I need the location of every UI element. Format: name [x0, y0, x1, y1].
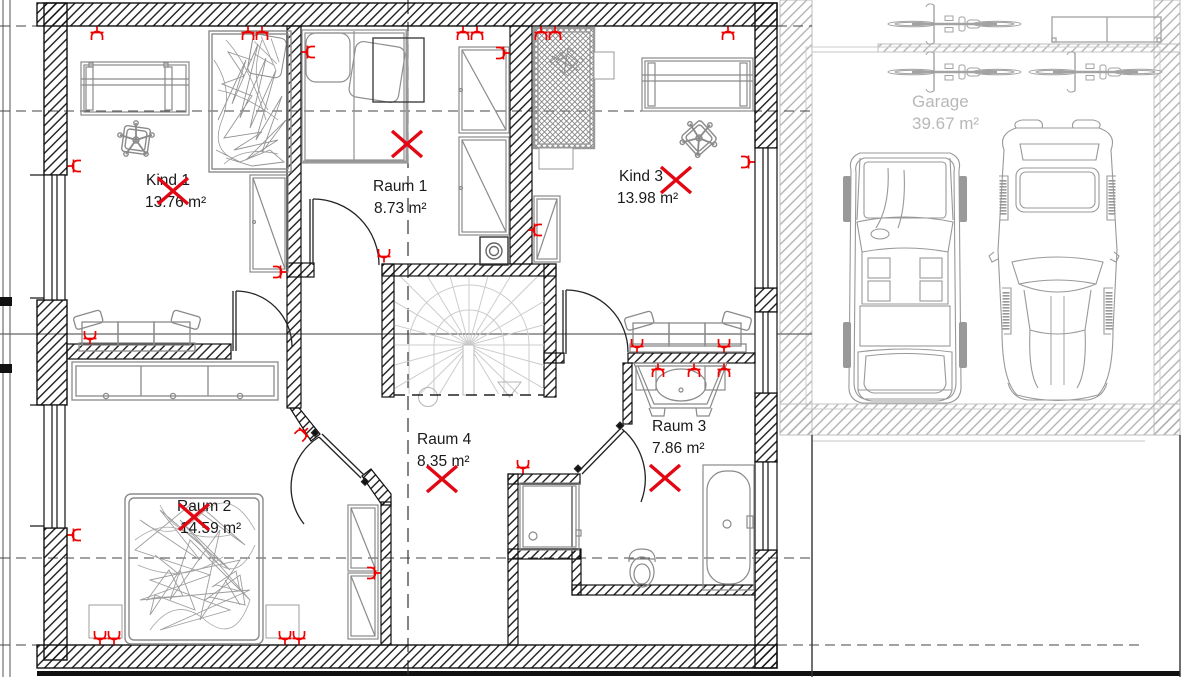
svg-text:13.98 m²: 13.98 m² [617, 190, 678, 207]
svg-text:8.73 m²: 8.73 m² [374, 200, 427, 217]
svg-text:Raum 4: Raum 4 [417, 431, 472, 448]
svg-text:7.86 m²: 7.86 m² [652, 440, 705, 457]
svg-text:Garage: Garage [912, 92, 969, 111]
svg-text:Raum 3: Raum 3 [652, 418, 706, 435]
svg-text:Raum 1: Raum 1 [373, 178, 427, 195]
svg-text:8.35 m²: 8.35 m² [417, 453, 470, 470]
svg-text:39.67 m²: 39.67 m² [912, 114, 979, 133]
svg-text:13.76 m²: 13.76 m² [145, 194, 206, 211]
svg-text:Kind 3: Kind 3 [619, 168, 663, 185]
